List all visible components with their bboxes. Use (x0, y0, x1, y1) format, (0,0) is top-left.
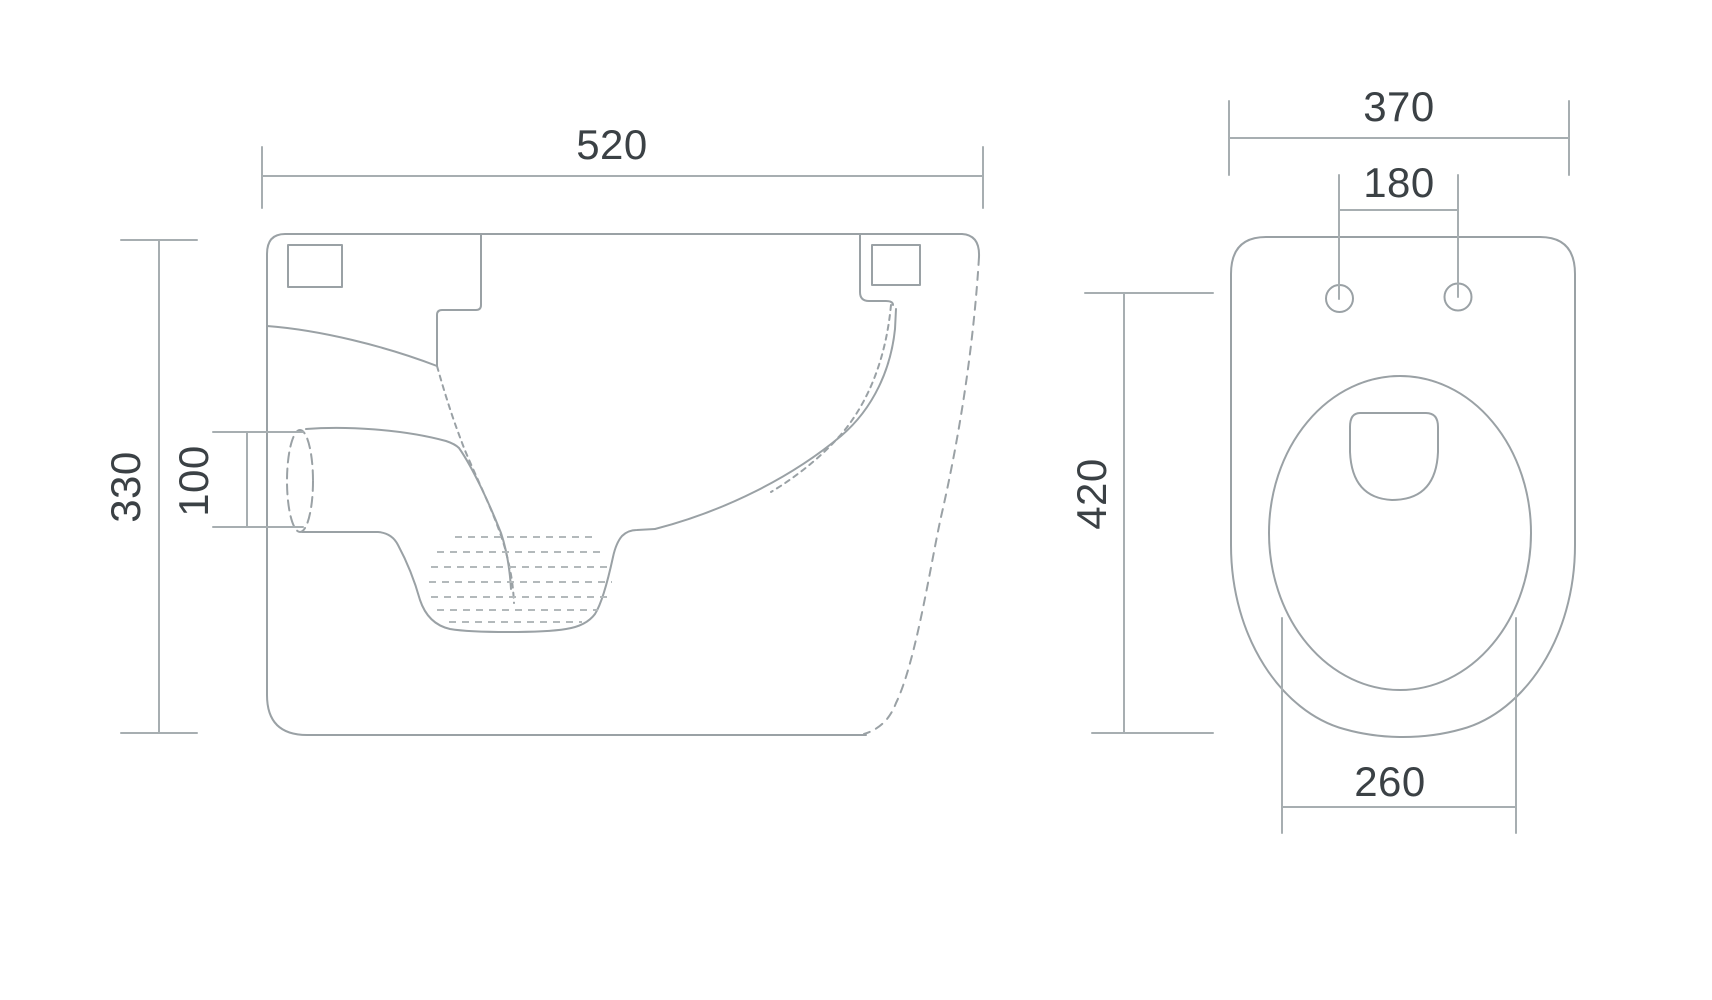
side-fixing-hole-left (288, 245, 342, 287)
side-width-label: 520 (576, 121, 648, 168)
top-width-label: 370 (1363, 83, 1435, 130)
side-outlet-pipe-bottom-sump (302, 529, 655, 632)
side-rim-step-left (437, 234, 481, 366)
top-depth-label: 420 (1068, 458, 1115, 530)
side-bowl-interior-curve (655, 309, 896, 529)
side-body-outline (267, 234, 962, 735)
side-water-level (429, 537, 612, 622)
side-body-top-right-corner (962, 234, 979, 257)
side-bowl-inlet-line (267, 326, 437, 366)
top-hole-spacing-label: 180 (1363, 159, 1435, 206)
top-bowl-width-label: 260 (1354, 758, 1426, 805)
top-flush-opening (1350, 413, 1438, 500)
side-height-label: 330 (102, 451, 149, 523)
side-fixing-hole-right (872, 245, 920, 285)
side-outlet-spigot (287, 430, 313, 532)
dimension-labels: 520 330 100 370 180 420 260 (102, 83, 1435, 805)
top-bowl-rim (1269, 376, 1531, 690)
technical-drawing: 520 330 100 370 180 420 260 (0, 0, 1712, 1000)
side-outlet-label: 100 (170, 445, 217, 517)
side-view (267, 234, 979, 735)
side-body-right-edge-hidden (864, 257, 979, 734)
